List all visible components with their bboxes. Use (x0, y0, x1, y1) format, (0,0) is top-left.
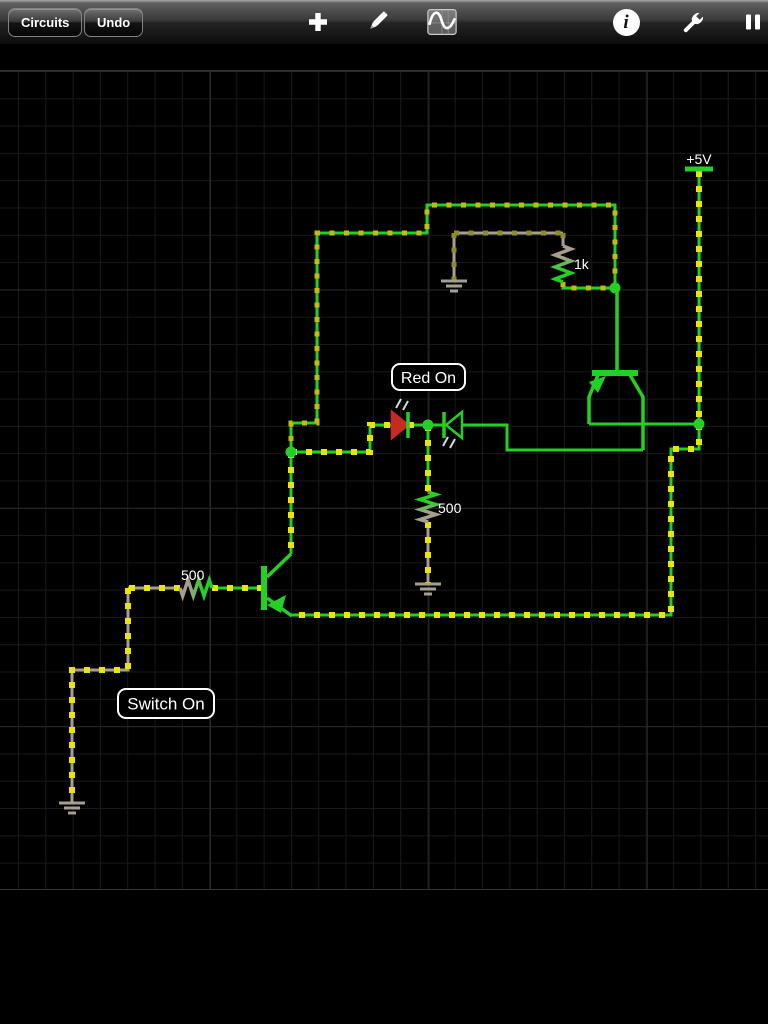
info-glyph: i (613, 9, 640, 36)
undo-button[interactable]: Undo (84, 8, 143, 37)
circuit-canvas[interactable]: 1k500500+5VRed OnSwitch On (0, 0, 768, 1024)
circuits-button[interactable]: Circuits (8, 8, 82, 37)
toolbar: Circuits Undo i (0, 0, 768, 45)
annotation-red-on[interactable]: Red On (392, 364, 465, 390)
info-icon[interactable]: i (611, 8, 641, 36)
settings-wrench-icon[interactable] (679, 8, 709, 36)
power-rail-5v[interactable]: +5V (685, 151, 713, 169)
resistor-500-middle[interactable]: 500 (420, 492, 462, 522)
led-emission-ray (403, 401, 408, 410)
scope-waveform-icon[interactable] (427, 8, 457, 36)
edit-pencil-icon[interactable] (362, 8, 392, 36)
annotation-text: Switch On (127, 695, 204, 714)
junction-dot[interactable] (694, 419, 705, 430)
led-red-on[interactable] (392, 399, 408, 438)
transistor-base-bar (592, 370, 638, 376)
component-value-label: 1k (574, 256, 590, 272)
led-emission-ray (396, 399, 401, 408)
app-window: { "toolbar": { "circuits_label": "Circui… (0, 0, 768, 1024)
component-value-label: 500 (181, 567, 205, 583)
led-triangle (392, 412, 408, 438)
current-flow-dashes (291, 425, 392, 452)
transistor-pnp-top[interactable] (589, 288, 643, 450)
node-to-red-led-wire[interactable] (291, 425, 392, 452)
power-rail-label: +5V (686, 151, 712, 167)
ground-symbol-middle[interactable] (415, 584, 441, 594)
junction-dot[interactable] (610, 283, 621, 294)
annotation-text: Red On (401, 370, 456, 387)
add-component-icon[interactable] (303, 8, 333, 36)
led-green-off[interactable] (443, 412, 462, 448)
resistor-1k[interactable]: 1k (555, 246, 590, 282)
led-emission-ray (443, 437, 448, 446)
top-collector-wire[interactable] (462, 425, 643, 450)
resistor-500-left[interactable]: 500 (180, 567, 212, 596)
transistor-base-bar (261, 566, 267, 610)
junction-dot[interactable] (286, 447, 297, 458)
ground-symbol-left[interactable] (59, 803, 85, 813)
ground-symbol-top[interactable] (441, 281, 467, 291)
led-triangle (446, 412, 462, 438)
transistor-pnp-bottom[interactable] (261, 554, 292, 616)
junction-dot[interactable] (423, 420, 434, 431)
led-emission-ray (450, 439, 455, 448)
annotation-switch-on[interactable]: Switch On (118, 689, 214, 718)
pause-icon[interactable] (738, 8, 768, 36)
component-value-label: 500 (438, 500, 462, 516)
